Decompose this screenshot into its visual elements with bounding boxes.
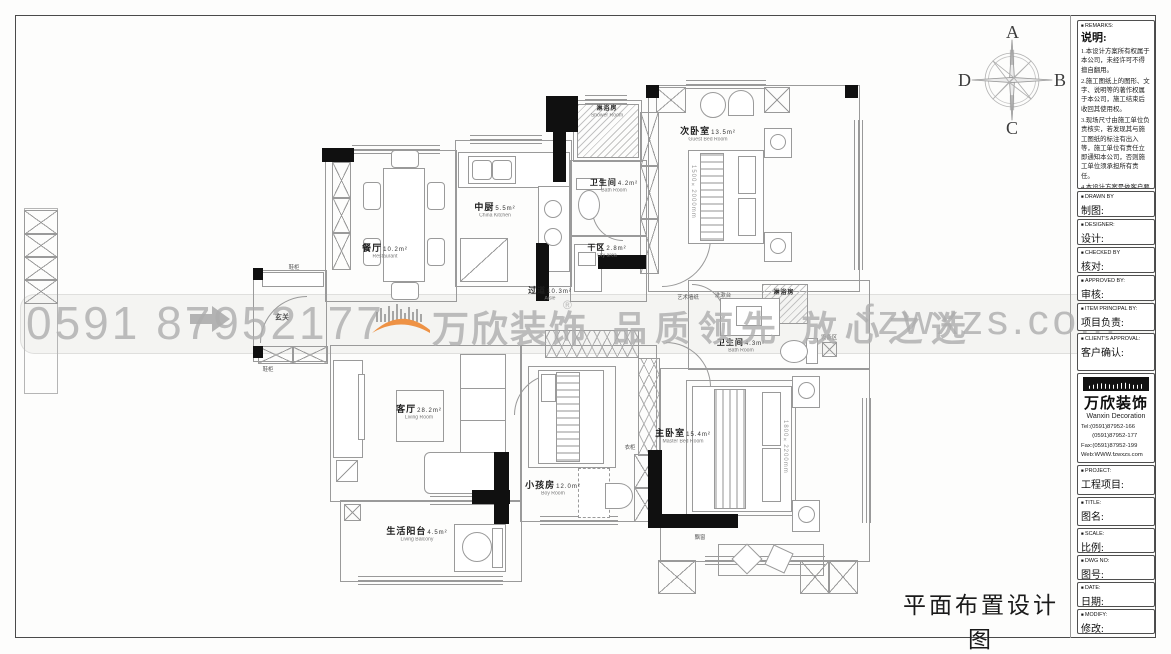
wall-segment — [646, 85, 659, 98]
window — [470, 135, 542, 144]
title-block: REMARKS: 说明: 1.本设计方案所有权属于本公司，未经许可不得擅自翻用。… — [1077, 20, 1155, 634]
window — [358, 576, 503, 585]
room-label-dry: 干区2.8m² Dry area — [578, 243, 636, 260]
dining-chair — [363, 182, 381, 210]
label-wash-stand: 洗漱台 — [715, 290, 731, 298]
company-logo-box: 万欣装饰 Wanxin Decoration Tel:(0591)87952-1… — [1077, 373, 1155, 463]
room-label-kitchen: 中厨5.5m² China Kitchen — [455, 202, 535, 220]
wall-segment — [494, 452, 509, 524]
field-approved-by: APPROVED BY: 审核: — [1077, 275, 1155, 301]
window — [585, 95, 627, 104]
washer-drum — [462, 532, 492, 562]
room-label-dining: 餐厅10.2m² Restaurant — [345, 243, 425, 261]
master-blanket — [714, 389, 746, 509]
sofa — [460, 354, 506, 456]
dining-chair — [391, 150, 419, 168]
watermark-logo — [372, 300, 430, 336]
desk-chair — [605, 483, 633, 509]
company-fax: Fax:(0591)87952-199 — [1081, 441, 1146, 450]
wall-segment — [553, 132, 566, 182]
compass-letter-left: D — [958, 70, 971, 91]
compass-letter-top: A — [1006, 22, 1019, 43]
company-logo-banner — [1083, 377, 1149, 391]
skyline-icon — [1089, 382, 1143, 389]
guest-round-table — [700, 92, 726, 118]
window — [862, 398, 871, 523]
field-drawn-by: DRAWN BY 制图: — [1077, 191, 1155, 217]
sheet-title: 平面布置设计图 — [892, 586, 1070, 654]
compass-rose: A B C D — [956, 24, 1068, 136]
remarks-label-en: REMARKS: — [1081, 23, 1144, 28]
room-label-balcony: 生活阳台4.5m² Living Balcony — [372, 526, 462, 544]
balcony-box — [344, 504, 361, 521]
guest-armchair — [728, 90, 754, 116]
company-tel2: (0591)87952-177 — [1081, 432, 1146, 441]
dining-table — [383, 168, 425, 282]
guest-side-cabinet — [640, 112, 659, 167]
nightstand-lamp — [770, 134, 786, 150]
remarks-item: 4.本设计方案是依客户要求设计，经客户签字即视为同意认可，不得随意更改。 — [1081, 183, 1151, 189]
field-scale: SCALE: 比例: — [1077, 528, 1155, 553]
cabinet — [332, 197, 351, 234]
label-bay-window: 飘窗 — [695, 532, 706, 540]
guest-closet — [656, 87, 686, 113]
sink-basin — [492, 160, 512, 180]
watermark-phone: 0591 87952177 — [26, 296, 385, 350]
remarks-item: 2.施工图纸上的图形、文字、说明等的著作权属于本公司，施工结束后收回其使用权。 — [1081, 77, 1151, 114]
stove-burner — [544, 228, 562, 246]
shaft-box — [24, 233, 58, 258]
label-art-wall: 艺术墙纸 — [677, 292, 699, 300]
guest-pillow — [738, 156, 756, 194]
master-pillow — [762, 448, 781, 502]
wall-segment — [472, 490, 510, 504]
label-shoe-cabinet: 鞋柜 — [263, 364, 274, 372]
boy-blanket — [556, 372, 580, 462]
field-dwg-no: DWG NO: 图号: — [1077, 555, 1155, 580]
field-checked-by: CHECKED BY 核对: — [1077, 247, 1155, 273]
dining-chair — [391, 282, 419, 300]
company-tel: Tel:(0591)87952-166 — [1081, 422, 1146, 431]
bed-dimension: 1500×2000mm — [690, 165, 696, 219]
sink-basin — [472, 160, 492, 180]
room-label-guest: 次卧室13.5m² Guest Bed Room — [668, 126, 748, 144]
label-shoe-cabinet: 鞋柜 — [289, 262, 300, 270]
label-wardrobe: 衣柜 — [625, 442, 636, 450]
wall-segment — [253, 268, 263, 280]
plant-stand — [336, 460, 358, 482]
field-designer: DESIGNER: 设计: — [1077, 219, 1155, 245]
wall-segment — [546, 96, 578, 132]
remarks-box: REMARKS: 说明: 1.本设计方案所有权属于本公司，未经许可不得擅自翻用。… — [1077, 20, 1155, 189]
field-modify: MODIFY: 修改: — [1077, 609, 1155, 634]
company-web: Web:WWW.fzwxzs.com — [1081, 450, 1146, 459]
guest-pillow — [738, 198, 756, 236]
nightstand-lamp — [770, 238, 786, 254]
dining-chair — [427, 238, 445, 266]
field-date: DATE: 日期: — [1077, 582, 1155, 607]
field-client-approval: CLIENT'S APPROVAL: 客户确认: — [1077, 333, 1155, 371]
shaft-box — [24, 210, 58, 235]
wall-segment — [845, 85, 858, 98]
shoe-cabinet-upper — [262, 272, 324, 287]
shaft-box — [828, 560, 858, 594]
room-label-living: 客厅28.2m² Living Room — [384, 404, 454, 422]
room-label-shower-top: 淋浴房 Shower Room — [577, 106, 637, 120]
field-title: TITLE: 图名: — [1077, 497, 1155, 526]
company-name-cn: 万欣装饰 — [1081, 392, 1151, 413]
washer-panel — [492, 528, 503, 568]
shaft-box — [658, 560, 696, 594]
stove-burner — [544, 200, 562, 218]
room-label-master: 主卧室15.4m² Master Bed Room — [648, 428, 718, 446]
guest-blanket — [700, 153, 724, 241]
remarks-label-cn: 说明: — [1081, 29, 1151, 45]
tv — [358, 374, 365, 440]
field-project: PROJECT: 工程项目: — [1077, 465, 1155, 496]
field-item-principal: ITEM PRINCIPAL BY: 项目负责: — [1077, 303, 1155, 331]
wall-segment — [648, 514, 738, 528]
nightstand-lamp — [798, 382, 815, 399]
remarks-item: 3.现场尺寸由施工单位负责核实，若发现其与施工图纸的标注有出入等，施工单位有责任… — [1081, 116, 1151, 181]
kitchen-cabinet — [460, 238, 508, 282]
room-label-bath-top: 卫生间4.2m² Bath Room — [585, 178, 643, 195]
company-name-en: Wanxin Decoration — [1081, 413, 1151, 420]
master-pillow — [762, 392, 781, 446]
remarks-item: 1.本设计方案所有权属于本公司，未经许可不得擅自翻用。 — [1081, 47, 1151, 75]
wall-segment — [322, 148, 354, 162]
room-label-boy: 小孩房12.0m² Boy Room — [518, 480, 588, 498]
dining-chair — [427, 182, 445, 210]
sheet-title-text: 平面布置设计图 — [903, 593, 1059, 652]
bed-dimension: 1800×2200mm — [782, 420, 788, 474]
room-label-mshower: 淋浴房 — [762, 290, 806, 297]
window — [854, 120, 863, 270]
nightstand-lamp — [798, 506, 815, 523]
compass-letter-right: B — [1054, 70, 1066, 91]
shaft-box — [24, 256, 58, 281]
drawing-sheet: 1500×2000mm 1800×2200mm — [0, 0, 1171, 654]
window — [686, 80, 766, 89]
compass-icon — [970, 38, 1054, 122]
compass-letter-bottom: C — [1006, 118, 1018, 139]
boy-pillow — [541, 374, 556, 402]
cabinet — [332, 162, 351, 199]
watermark-reg: ® — [563, 298, 572, 312]
guest-closet — [764, 87, 790, 113]
